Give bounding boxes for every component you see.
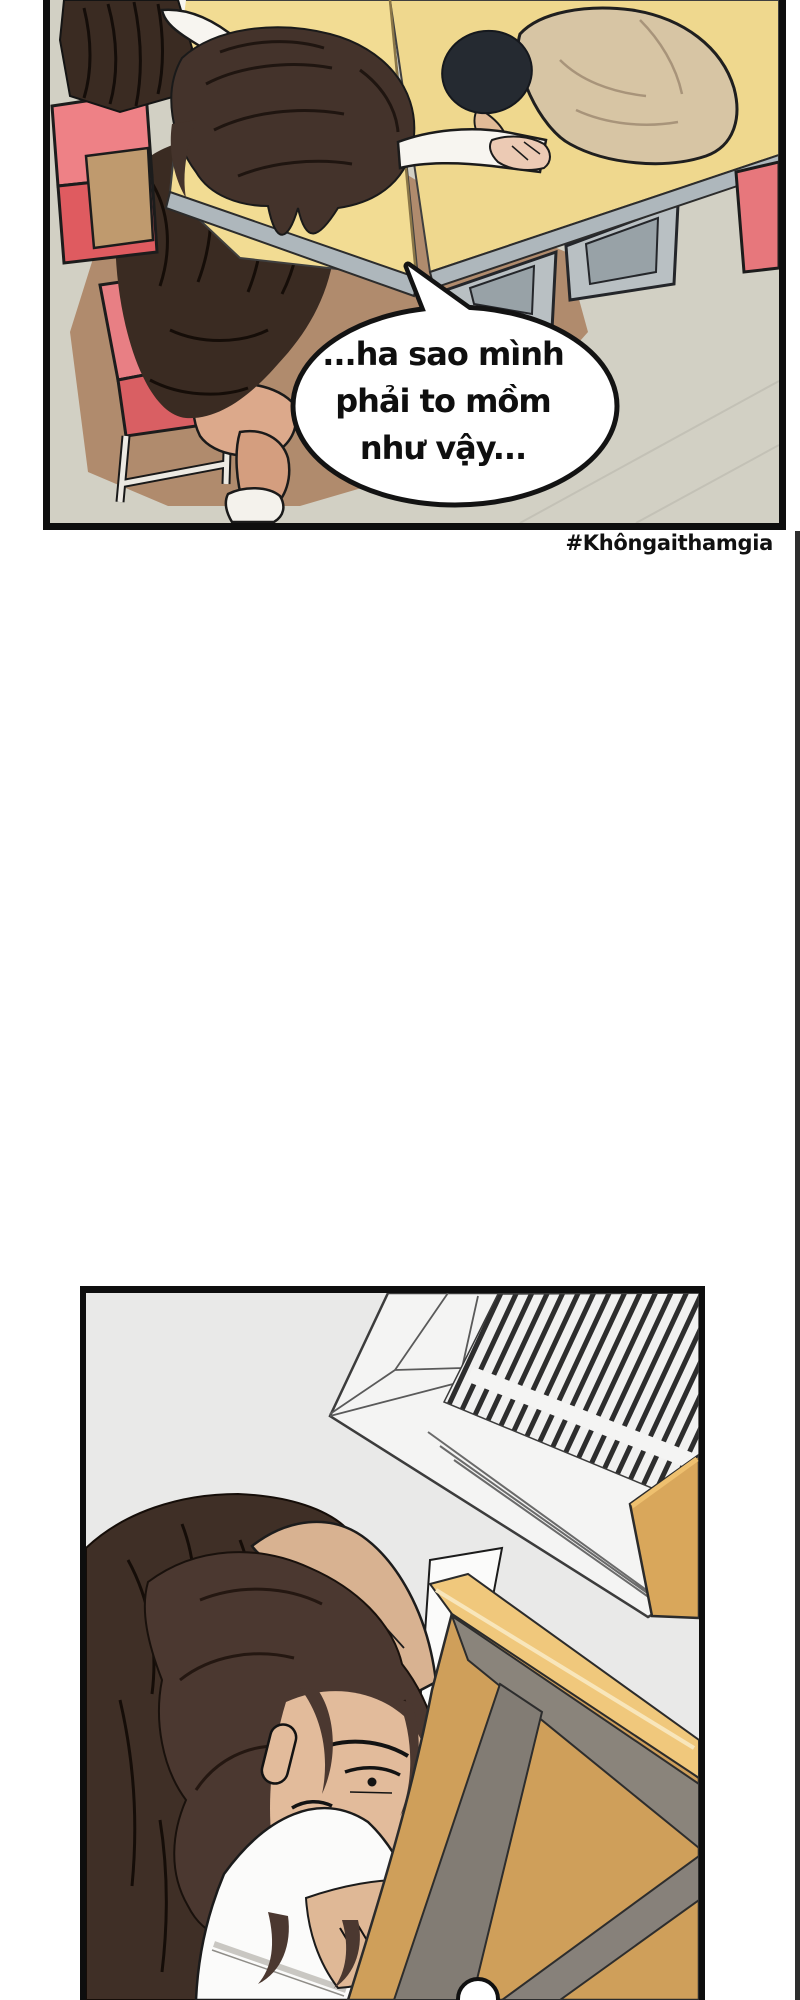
speech-bubble-text: ...ha sao mình phải to mồm như vậy... xyxy=(283,331,603,472)
right-edge-chair xyxy=(736,162,779,272)
classmate-chair xyxy=(52,92,157,263)
comic-panel-classroom: ...ha sao mình phải to mồm như vậy... xyxy=(43,0,786,530)
speech-bubble-line: như vậy... xyxy=(283,425,603,472)
comic-page: ...ha sao mình phải to mồm như vậy... #K… xyxy=(0,0,800,2000)
hashtag-caption: #Khôngaithamgia xyxy=(565,531,773,555)
partial-speech-bubble xyxy=(458,1979,498,2000)
speech-bubble-line: phải to mồm xyxy=(283,378,603,425)
speech-bubble-line: ...ha sao mình xyxy=(283,331,603,378)
comic-panel-under-desk xyxy=(80,1286,705,2000)
page-edge-line xyxy=(795,531,800,2000)
under-desk-artwork xyxy=(86,1293,699,2000)
